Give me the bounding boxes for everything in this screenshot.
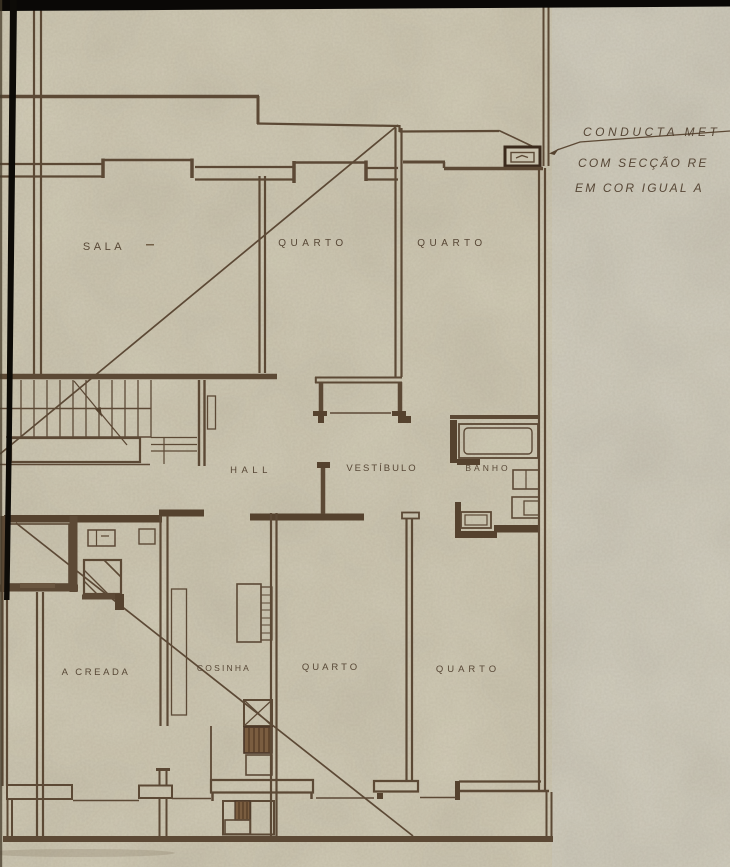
svg-text:QUARTO: QUARTO xyxy=(417,238,486,249)
svg-text:QUARTO: QUARTO xyxy=(436,664,500,675)
svg-text:EM COR IGUAL A: EM COR IGUAL A xyxy=(575,181,704,195)
svg-text:A CREADA: A CREADA xyxy=(62,667,131,678)
svg-text:HALL: HALL xyxy=(230,465,272,476)
svg-text:QUARTO: QUARTO xyxy=(302,662,360,673)
svg-text:BANHO: BANHO xyxy=(465,463,510,473)
svg-text:VESTÍBULO: VESTÍBULO xyxy=(346,463,417,474)
svg-text:QUARTO: QUARTO xyxy=(278,238,347,249)
svg-text:COM SECÇÃO RE: COM SECÇÃO RE xyxy=(578,156,709,170)
svg-text:CONDUCTA MET: CONDUCTA MET xyxy=(583,125,720,139)
svg-text:COSINHA: COSINHA xyxy=(197,663,251,673)
svg-text:SALA: SALA xyxy=(83,241,125,253)
